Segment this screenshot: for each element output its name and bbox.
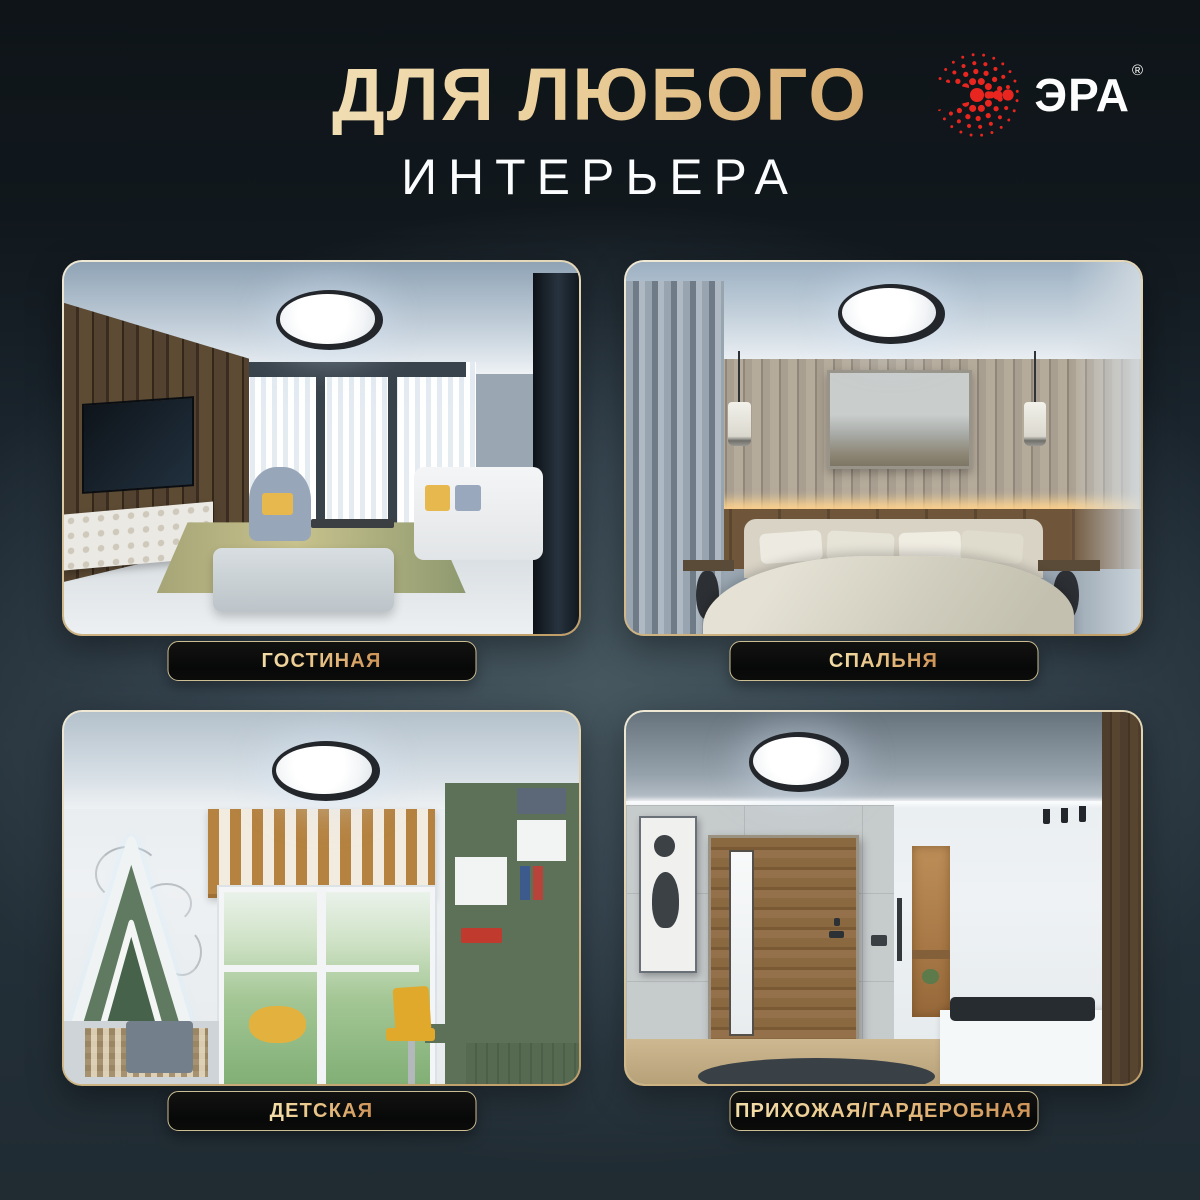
door-lock [834, 918, 840, 925]
side-table [1038, 560, 1100, 571]
glass-partition [533, 273, 579, 634]
window [219, 887, 435, 1084]
window-mullion [317, 887, 325, 1084]
coffee-table [311, 519, 393, 529]
desk-drawers [466, 1043, 579, 1084]
chair-back [392, 986, 431, 1033]
light-switch [871, 935, 886, 946]
coat-hook [1061, 808, 1068, 824]
window-mullion [224, 965, 420, 972]
coat-hook [1043, 809, 1050, 825]
ceiling [626, 712, 1141, 801]
brand-logo: ЭРА® [930, 46, 1142, 144]
bench-cushion [950, 997, 1094, 1021]
era-logo-icon [930, 46, 1024, 144]
pendant-cord [1034, 351, 1036, 403]
tv [82, 396, 194, 493]
photo-living-room [64, 262, 579, 634]
chair-seat [386, 1028, 435, 1041]
brand-name: ЭРА® [1034, 72, 1142, 118]
window-frame-top [249, 362, 465, 377]
sofa [414, 467, 543, 560]
room-label-plate: СПАЛЬНЯ [729, 641, 1038, 681]
room-card-kids-room: ДЕТСКАЯ [62, 710, 581, 1086]
sofa-pillow-blue [455, 485, 481, 511]
roman-blind [208, 809, 435, 899]
niche-shelf [912, 950, 951, 959]
wall-art [827, 370, 972, 469]
ceiling-light-product [749, 732, 849, 791]
books [533, 866, 543, 899]
storage-box [517, 788, 566, 814]
shelf-cubby [517, 820, 566, 861]
registered-mark: ® [1132, 62, 1144, 79]
ottoman [213, 548, 393, 611]
ceiling-light-product [276, 290, 383, 350]
poster-shape [652, 872, 679, 928]
chair-leg [408, 1041, 415, 1084]
coat-hook [1079, 806, 1086, 822]
gray-blanket [126, 1021, 193, 1073]
promo-page: ДЛЯ ЛЮБОГО ИНТЕРЬЕРА ЭРА® [0, 0, 1200, 1200]
toy-truck [461, 928, 502, 943]
room-label-plate: ГОСТИНАЯ [167, 641, 476, 681]
room-label: ГОСТИНАЯ [261, 650, 381, 673]
wardrobe-handle [897, 898, 902, 961]
armchair-pillow [262, 493, 293, 515]
photo-kids-room [64, 712, 579, 1084]
right-wall-light [1069, 262, 1141, 634]
shelf-cubby [455, 857, 507, 905]
pendant-light [1024, 402, 1047, 447]
yellow-pillow [249, 1006, 306, 1043]
pillow [759, 530, 823, 564]
room-card-bedroom: СПАЛЬНЯ [624, 260, 1143, 636]
room-label-plate: ПРИХОЖАЯ/ГАРДЕРОБНАЯ [729, 1091, 1038, 1131]
room-label: ДЕТСКАЯ [270, 1100, 374, 1123]
pendant-light [728, 402, 751, 447]
room-card-living-room: ГОСТИНАЯ [62, 260, 581, 636]
ceiling-light-product [838, 284, 945, 344]
room-label-plate: ДЕТСКАЯ [167, 1091, 476, 1131]
door-handle [829, 931, 843, 937]
wood-niche [912, 846, 951, 1017]
photo-bedroom [626, 262, 1141, 634]
desk [425, 1024, 580, 1043]
room-label: ПРИХОЖАЯ/ГАРДЕРОБНАЯ [735, 1100, 1032, 1123]
wardrobe-wood-panel [1102, 712, 1141, 1084]
photo-hallway [626, 712, 1141, 1084]
pendant-cord [738, 351, 740, 403]
sofa-pillow-yellow [425, 485, 451, 511]
plant [922, 969, 938, 984]
door-glass-strip [729, 850, 754, 1036]
ceiling-light-product [272, 741, 380, 801]
room-label: СПАЛЬНЯ [829, 650, 938, 673]
room-card-hallway: ПРИХОЖАЯ/ГАРДЕРОБНАЯ [624, 710, 1143, 1086]
side-table [683, 560, 735, 571]
books [520, 866, 530, 899]
bench-cabinet [940, 1010, 1110, 1084]
poster-shape [654, 835, 675, 857]
page-subtitle: ИНТЕРЬЕРА [0, 148, 1200, 206]
